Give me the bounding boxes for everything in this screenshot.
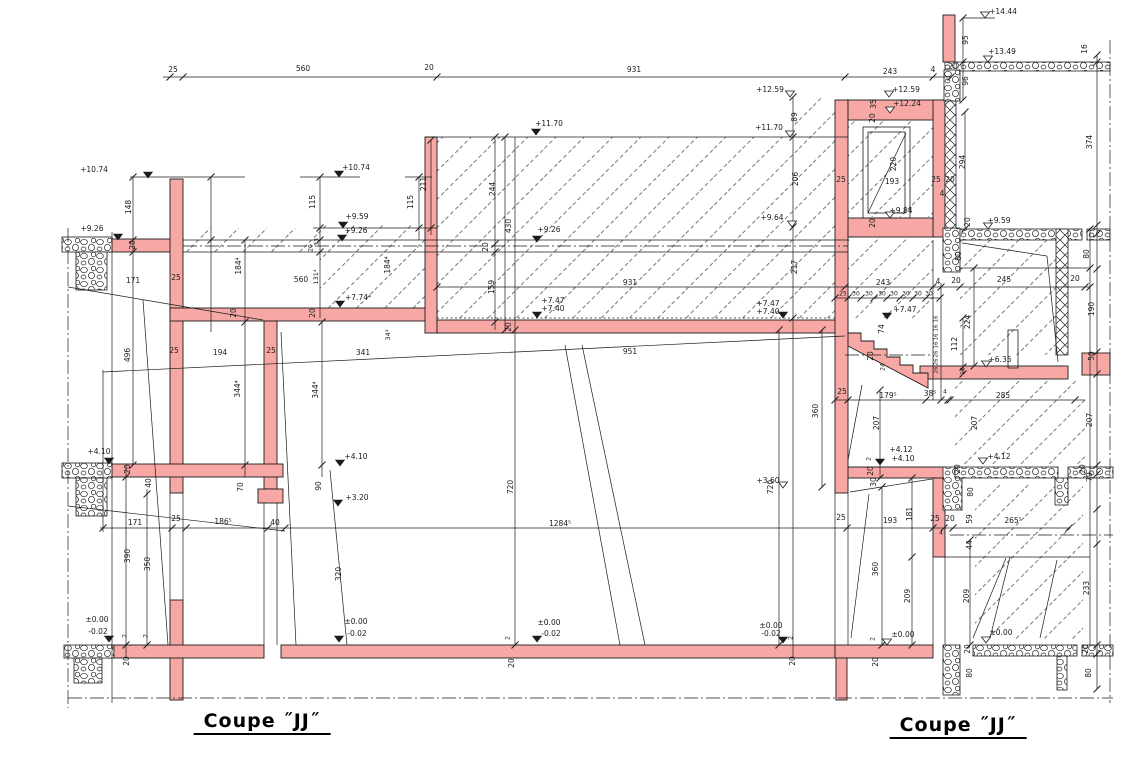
elevation-label: -0.02 xyxy=(347,629,367,638)
hatch-area xyxy=(320,225,425,310)
elevation-label: ±0.00 xyxy=(990,628,1013,637)
drawing-line xyxy=(281,332,296,645)
elevation-marker xyxy=(336,460,345,466)
wall-segment xyxy=(258,489,283,503)
elevation-label: ±0.00 xyxy=(538,618,561,627)
dim-label: 4 xyxy=(943,389,947,396)
wall-segment xyxy=(437,320,848,333)
dim-label: 20 xyxy=(1070,274,1080,283)
dim-label: 193 xyxy=(883,516,898,525)
dim-label: 40 xyxy=(144,478,153,488)
dim-label: 20 xyxy=(866,466,875,476)
insulation-strip xyxy=(945,101,956,228)
elevation-marker-open xyxy=(779,482,788,488)
elevation-label: +12.59 xyxy=(892,85,920,94)
elevation-marker-open xyxy=(786,91,795,97)
stone-foundation xyxy=(945,62,1110,71)
dim-label: 25 xyxy=(931,175,941,184)
elevation-label: +10.74 xyxy=(342,163,370,172)
elevation-label: -0.02 xyxy=(541,629,561,638)
elevation-label: +6.35 xyxy=(989,355,1012,364)
dim-label: 341 xyxy=(356,348,371,357)
stone-foundation xyxy=(62,463,112,478)
stone-foundation xyxy=(74,658,102,683)
dim-label: 20 xyxy=(788,656,797,666)
elevation-label: +9.26 xyxy=(538,225,561,234)
wall-segment xyxy=(170,308,437,321)
dim-label: 30 xyxy=(878,291,886,298)
dim-label: 26 xyxy=(934,358,940,365)
stone-foundation xyxy=(1057,656,1067,690)
dim-label: 115 xyxy=(406,195,415,210)
elevation-label: +12.24 xyxy=(893,99,921,108)
dim-label: 186⁵ xyxy=(214,517,231,526)
dim-label: 951 xyxy=(623,347,638,356)
stone-foundation xyxy=(1087,229,1110,240)
dim-label: 20 xyxy=(948,62,958,71)
dim-label: 244 xyxy=(488,182,497,197)
dim-label: 20 xyxy=(128,240,137,250)
dim-label: 95 xyxy=(961,35,970,45)
dim-label: 30 xyxy=(902,291,910,298)
dim-label: 350 xyxy=(143,557,152,572)
elevation-label: +7.40 xyxy=(757,307,780,316)
stone-foundation xyxy=(64,645,114,658)
dim-label: 25 xyxy=(168,65,178,74)
elevation-label: +3.60 xyxy=(757,476,780,485)
dim-label: 194 xyxy=(213,348,228,357)
dim-label: 20 xyxy=(1081,644,1090,654)
dim-label: 4 xyxy=(939,530,943,537)
dim-label: 233 xyxy=(1082,581,1091,596)
dim-label: 20 xyxy=(507,658,516,668)
drawing-line xyxy=(582,345,645,645)
dim-label: 2 xyxy=(870,637,877,641)
stone-foundation xyxy=(955,467,1058,478)
dim-label: 20 xyxy=(308,308,317,318)
dim-label: 38⁵ xyxy=(924,389,937,398)
dim-label: 294 xyxy=(958,155,967,170)
dim-label: 171 xyxy=(126,276,141,285)
dim-label: 4 xyxy=(931,65,936,74)
dim-label: 496 xyxy=(123,348,132,363)
dim-label: 33 xyxy=(314,238,321,246)
elevation-label: +4.12 xyxy=(890,445,913,454)
dim-label: 90 xyxy=(314,481,323,491)
stone-foundation xyxy=(76,252,107,290)
elevation-marker xyxy=(335,636,344,642)
dim-label: 80 xyxy=(966,487,975,497)
dim-label: 430 xyxy=(504,219,513,234)
dim-label: 16 xyxy=(934,324,940,331)
elevation-label: +4.10 xyxy=(345,452,368,461)
dim-label: 30 xyxy=(925,291,933,298)
elevation-label: +9.26 xyxy=(81,224,104,233)
elevation-label: ±0.00 xyxy=(86,615,109,624)
dim-label: 20 xyxy=(945,175,955,184)
elevation-label: +9.64 xyxy=(761,213,784,222)
drawing-line xyxy=(565,345,620,645)
dim-label: 344⁴ xyxy=(233,380,242,397)
dim-label: 79 xyxy=(1085,472,1094,482)
dim-label: 245 xyxy=(997,275,1012,284)
dim-label: 184⁴ xyxy=(383,256,392,273)
dim-label: 25 xyxy=(171,273,181,282)
elevation-label: +4.12 xyxy=(988,452,1011,461)
drawing-line xyxy=(850,479,932,492)
dim-label: 16 xyxy=(960,367,967,375)
dim-label: 80 xyxy=(954,251,963,261)
elevation-marker-open xyxy=(883,639,892,645)
dim-label: 2 xyxy=(122,634,129,638)
dim-label: 24 xyxy=(880,363,887,371)
dim-label: 224 xyxy=(963,315,972,330)
dim-label: 181 xyxy=(905,507,914,522)
dim-label: 20 xyxy=(308,244,315,252)
dim-label: 25 xyxy=(839,291,847,298)
drawing-title-left: Coupe ˝JJ˝ xyxy=(194,710,331,735)
dim-label: 207 xyxy=(970,416,979,431)
dim-label: 360 xyxy=(811,404,820,419)
wall-segment xyxy=(281,645,835,658)
dim-label: 25 xyxy=(836,513,846,522)
dim-label: 390 xyxy=(123,549,132,564)
dim-label: 70 xyxy=(236,482,245,492)
stone-foundation xyxy=(943,228,960,272)
elevation-label: +4.10 xyxy=(892,454,915,463)
dim-label: 190 xyxy=(1087,302,1096,317)
dim-label: 217 xyxy=(790,260,799,275)
dim-label: 25 xyxy=(930,514,940,523)
dim-label: 2 xyxy=(505,636,512,640)
dim-label: 80 xyxy=(965,668,974,678)
dim-label: 44 xyxy=(965,540,974,550)
dim-label: 25 xyxy=(836,175,846,184)
elevation-label: +12.59 xyxy=(756,85,784,94)
dim-label: 211 xyxy=(419,177,428,192)
stone-foundation xyxy=(973,645,1077,656)
dim-label: 4 xyxy=(940,189,945,198)
elevation-label: +7.74⁴ xyxy=(345,293,371,302)
dim-label: 193 xyxy=(885,177,900,186)
elevation-label: +9.26 xyxy=(345,226,368,235)
elevation-label: ±0.00 xyxy=(345,617,368,626)
dim-label: 16 xyxy=(934,341,940,348)
elevation-label: ±0.00 xyxy=(892,630,915,639)
elevation-marker xyxy=(334,500,343,506)
dim-label: 25 xyxy=(266,346,276,355)
dim-label: 20 xyxy=(868,218,877,228)
dim-label: 20 xyxy=(866,351,875,361)
wall-segment xyxy=(836,658,847,700)
dim-label: 20 xyxy=(481,242,490,252)
dim-label: 243 xyxy=(883,67,898,76)
elevation-label: +7.47 xyxy=(894,305,917,314)
dim-label: 25 xyxy=(837,387,847,396)
dim-label: 20 xyxy=(424,63,434,72)
elevation-label: +9.84 xyxy=(890,206,913,215)
dim-label: 560 xyxy=(296,64,311,73)
dim-label: 20 xyxy=(945,514,955,523)
wall-segment xyxy=(170,179,183,493)
dim-label: 1284⁵ xyxy=(549,519,571,528)
dim-label: 148 xyxy=(124,200,133,215)
dim-label: 243 xyxy=(876,278,891,287)
dim-label: 20 xyxy=(868,113,877,123)
dim-label: 20 xyxy=(504,322,513,332)
dim-label: 30 xyxy=(852,291,860,298)
wall-segment xyxy=(835,645,933,658)
drawing-title-right: Coupe ˝JJ˝ xyxy=(890,714,1027,739)
dim-label: 115 xyxy=(308,195,317,210)
elevation-label: -0.02 xyxy=(761,629,781,638)
dim-label: 171 xyxy=(128,518,143,527)
elevation-label: +14.44 xyxy=(989,7,1017,16)
dim-label: 25 xyxy=(169,346,179,355)
hatch-area xyxy=(848,237,933,318)
dim-label: 25 xyxy=(171,514,181,523)
dim-label: 16 xyxy=(1080,44,1089,54)
dim-label: 26 xyxy=(934,350,940,357)
dim-label: 265⁵ xyxy=(1004,516,1021,525)
dim-label: 80 xyxy=(1084,668,1093,678)
dim-label: 20 xyxy=(122,656,131,666)
elevation-label: -0.02 xyxy=(88,627,108,636)
wall-segment xyxy=(848,467,945,478)
dim-label: 26 xyxy=(934,366,940,373)
dim-label: 74 xyxy=(877,324,886,334)
elevation-label: +3.20 xyxy=(346,493,369,502)
dim-label: 220 xyxy=(889,157,898,172)
dim-label: 34⁴ xyxy=(384,329,392,340)
elevation-label: +10.74 xyxy=(80,165,108,174)
dim-label: 20 xyxy=(871,657,880,667)
dim-label: 30 xyxy=(890,291,898,298)
dim-label: 30 xyxy=(869,477,878,487)
dim-label: 59 xyxy=(965,514,974,524)
dim-label: 184⁴ xyxy=(234,257,243,274)
dim-label: 209 xyxy=(962,589,971,604)
dim-label: 20 xyxy=(953,464,962,474)
stone-foundation xyxy=(62,237,112,252)
elevation-label: +11.70 xyxy=(755,123,783,132)
wall-segment xyxy=(920,366,1068,379)
dim-label: 112 xyxy=(950,337,959,352)
blueprint-page: 2556020931243420+14.4495+13.491696+12.59… xyxy=(0,0,1129,762)
dim-label: 159 xyxy=(487,280,496,295)
stair-steps xyxy=(848,333,928,388)
dim-label: 20 xyxy=(963,217,972,227)
dim-label: 20 xyxy=(123,464,132,474)
section-drawing: 2556020931243420+14.4495+13.491696+12.59… xyxy=(0,0,1129,762)
dim-label: 360 xyxy=(871,562,880,577)
dim-label: 80 xyxy=(1082,249,1091,259)
hatch-area xyxy=(975,485,1083,640)
dim-label: 20 xyxy=(963,644,972,654)
dim-label: 30 xyxy=(914,291,922,298)
wall-segment xyxy=(848,218,933,237)
hatch-area xyxy=(437,137,848,318)
elevation-marker xyxy=(533,636,542,642)
dim-label: 207 xyxy=(1085,413,1094,428)
dim-label: 931 xyxy=(627,65,642,74)
dim-label: 40 xyxy=(270,518,280,527)
dim-label: 374 xyxy=(1085,135,1094,150)
dim-label: 30 xyxy=(865,291,873,298)
dim-label: 89 xyxy=(790,112,799,122)
dim-label: 20 xyxy=(951,276,961,285)
dim-label: 720 xyxy=(506,480,515,495)
stone-foundation xyxy=(1055,478,1068,505)
elevation-label: +9.59 xyxy=(346,212,369,221)
elevation-label: +13.49 xyxy=(988,47,1016,56)
dim-label: 320 xyxy=(334,567,343,582)
dim-label: 16 xyxy=(934,333,940,340)
wall-segment xyxy=(933,100,945,237)
dim-label: 285 xyxy=(996,391,1011,400)
dim-label: 131⁴ xyxy=(312,269,320,284)
wall-segment xyxy=(108,464,283,477)
dim-label: 206 xyxy=(791,172,800,187)
wall-segment xyxy=(943,15,955,62)
insulation-strip xyxy=(1056,229,1068,355)
dim-label: 2 xyxy=(143,634,150,638)
dim-label: 179⁵ xyxy=(879,391,896,400)
wall-segment xyxy=(108,645,264,658)
drawing-line xyxy=(848,385,862,460)
elevation-label: +9.59 xyxy=(988,216,1011,225)
dim-label: 207 xyxy=(872,416,881,431)
dim-label: 344⁴ xyxy=(311,381,320,398)
elevation-label: +7.40 xyxy=(542,304,565,313)
elevation-marker xyxy=(532,129,541,135)
dim-label: 50 xyxy=(1087,351,1096,361)
elevation-label: +4.10 xyxy=(88,447,111,456)
dim-label: 35 xyxy=(869,99,878,109)
dim-label: 20 xyxy=(229,308,238,318)
dim-label: 2 xyxy=(788,636,795,640)
dim-label: 2 xyxy=(866,457,873,461)
drawing-line xyxy=(851,494,869,638)
dim-label: 96 xyxy=(961,76,970,86)
elevation-marker xyxy=(876,459,885,465)
dim-label: 4 xyxy=(936,277,941,286)
elevation-label: +11.70 xyxy=(535,119,563,128)
dim-label: 209 xyxy=(903,589,912,604)
elevation-marker-open xyxy=(984,56,993,62)
dim-label: 560 xyxy=(294,275,309,284)
dim-label: 931 xyxy=(623,278,638,287)
stone-foundation xyxy=(943,645,960,695)
stone-foundation xyxy=(944,70,960,101)
dim-label: 16 xyxy=(934,315,940,322)
